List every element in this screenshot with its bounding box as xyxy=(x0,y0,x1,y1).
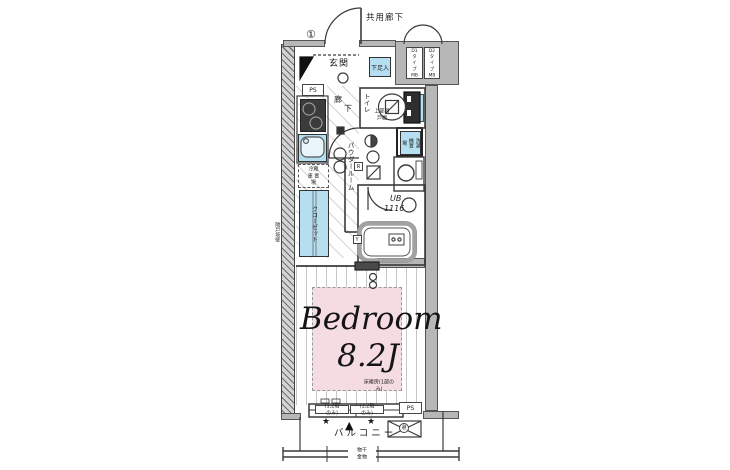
remote-box-r-label: R xyxy=(357,163,360,170)
party-wall-label: 隣戸境壁 xyxy=(274,222,280,242)
genkan-downlight xyxy=(338,73,348,83)
escape-hatch-mark: 避 xyxy=(399,423,409,433)
wall-marker: ① xyxy=(306,28,316,42)
kitchen-counter-outline xyxy=(297,96,328,163)
floor-plan: D1 タイプ MB D2 タイプ MB 下足入 PS 冷蔵庫 置場 クローゼット… xyxy=(0,0,730,470)
bedroom-size-label: 8.2J xyxy=(322,337,414,376)
bath-ub-label: UB xyxy=(390,194,401,204)
bedroom-note-label: 床暖房(1部のみ) xyxy=(364,378,395,392)
remote-box-r: R xyxy=(354,162,363,171)
remote-box-y-label: Y xyxy=(356,236,359,243)
powder-room-label: パウダールーム xyxy=(346,142,354,191)
bathtub xyxy=(358,222,417,263)
toilet-note-label: 上部吊戸棚 xyxy=(374,107,391,121)
laundry-hanger-label: 物干金物 xyxy=(355,446,369,460)
genkan-label: 玄関 xyxy=(329,59,349,70)
toilet-note-box: 上部吊戸棚 xyxy=(365,110,399,118)
hallway-label-char1: 廊 xyxy=(334,95,342,105)
bedroom-door xyxy=(355,262,379,289)
window-note-left-pill: (1,2階のみ) xyxy=(315,405,349,414)
meter-box-door-swings xyxy=(404,25,442,44)
hallway-label-char2: 下 xyxy=(344,104,352,114)
window-star-left: ★ xyxy=(322,417,330,428)
laundry-hanger-label-box: 物干金物 xyxy=(348,448,376,458)
entry-mirror xyxy=(300,57,313,79)
window-note-right-label: (1,2階のみ) xyxy=(359,403,375,417)
pipe-space-bottom: PS xyxy=(399,402,422,414)
escape-hatch-mark-label: 避 xyxy=(402,425,407,432)
window-note-left-label: (1,2階のみ) xyxy=(324,403,340,417)
window-star-right: ★ xyxy=(367,417,375,428)
bath-size-label: 1116 xyxy=(384,204,404,214)
window-note-right-pill: (1,2階のみ) xyxy=(350,405,384,414)
washbasin xyxy=(394,157,424,191)
pipe-space-bottom-label: PS xyxy=(407,405,414,412)
linework-layer xyxy=(0,0,730,470)
closet-door-lines xyxy=(313,191,316,256)
bedroom-name-label: Bedroom xyxy=(300,300,432,339)
bedroom-note-box: 床暖房(1部のみ) xyxy=(348,380,410,390)
balcony-label: バルコニー xyxy=(334,428,396,440)
entry-door-swing xyxy=(325,8,361,44)
corridor-label: 共用廊下 xyxy=(366,13,404,24)
remote-box-y: Y xyxy=(353,235,362,244)
powder-room-fixtures xyxy=(365,135,380,179)
